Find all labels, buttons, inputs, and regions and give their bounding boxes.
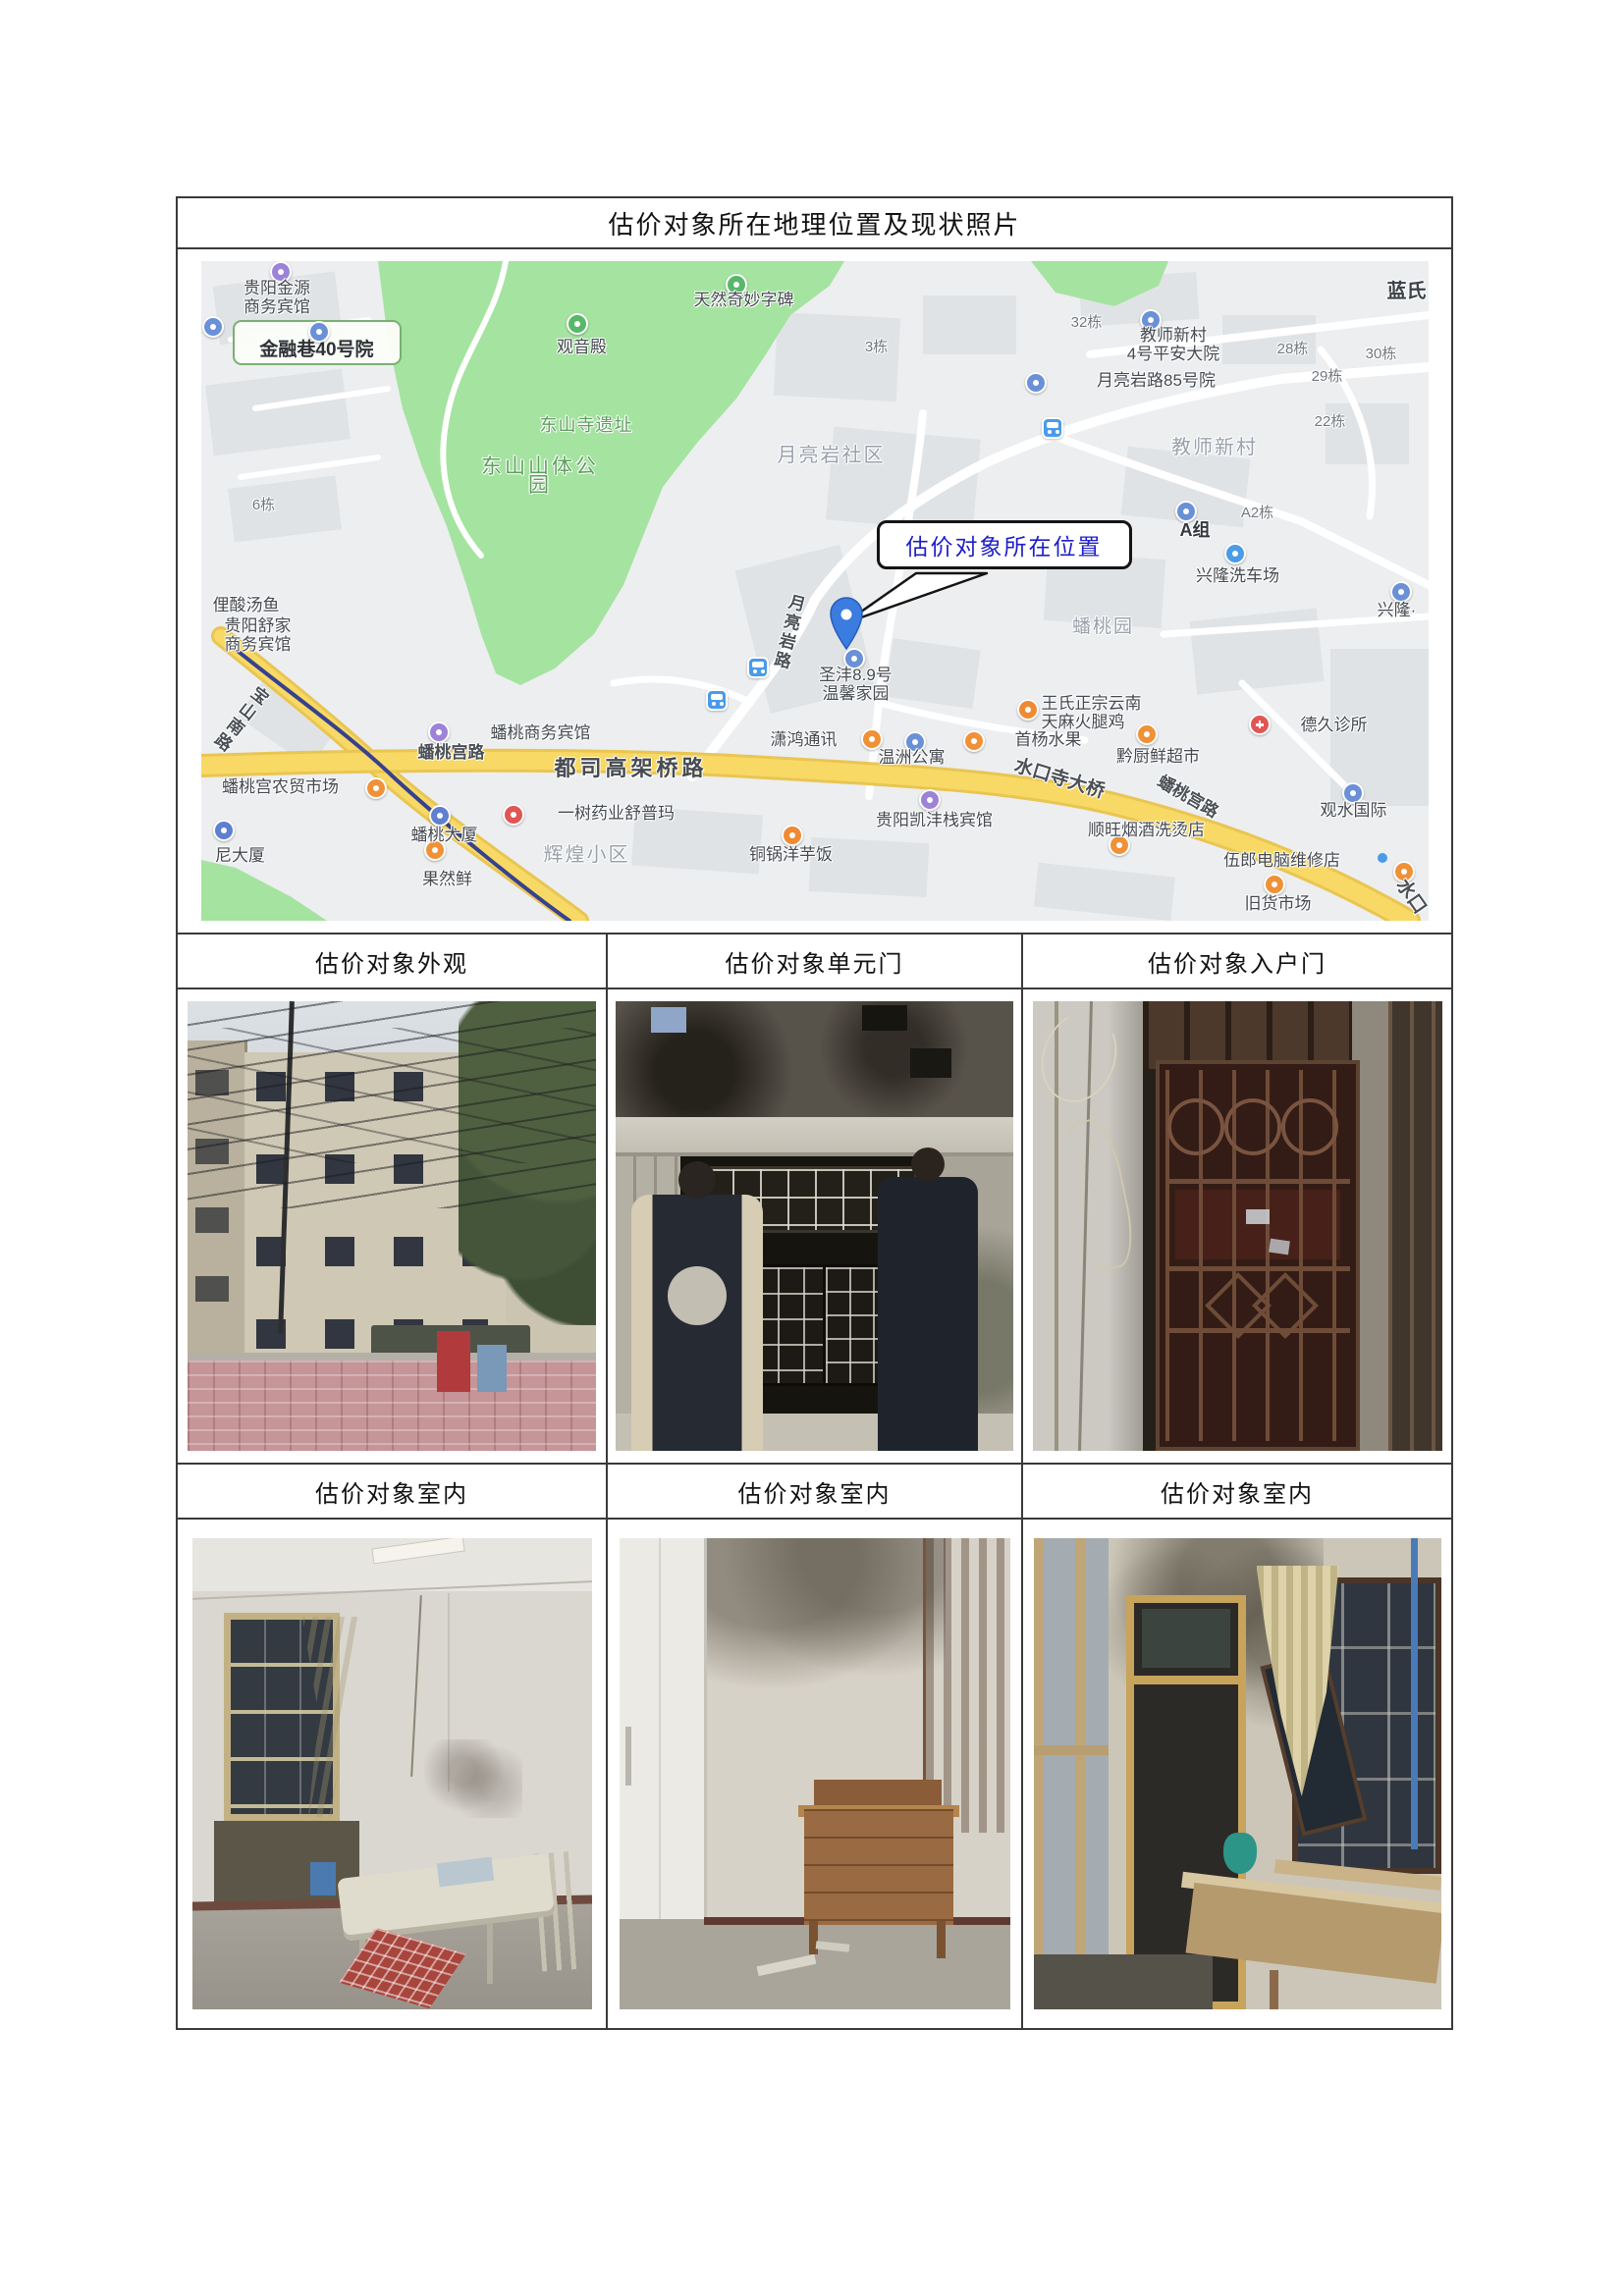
wall-stain <box>424 1739 522 1818</box>
map-label: 观水国际 <box>1313 801 1395 820</box>
residence-icon <box>1390 581 1412 603</box>
building-icon <box>213 820 235 841</box>
brick-wall <box>188 1353 596 1451</box>
bus-stop-icon <box>1042 417 1063 439</box>
caption-entry-door: 估价对象入户门 <box>1023 934 1451 988</box>
map-label: 贵阳金源 商务宾馆 <box>221 279 334 316</box>
ceiling-line <box>192 1580 592 1600</box>
map-label: 圣沣8.9号 温馨家园 <box>797 666 915 703</box>
pharmacy-icon <box>503 804 524 826</box>
left-window-frame <box>1034 1538 1109 2009</box>
sticker <box>1269 1239 1290 1255</box>
cabinet-seam <box>659 1538 661 1921</box>
gate-rail <box>1165 1266 1351 1271</box>
hotel-icon <box>919 789 941 811</box>
residence-icon <box>1175 501 1197 522</box>
gate-circle-motif <box>1281 1098 1338 1155</box>
photo-cell <box>1023 1520 1451 2028</box>
gate-circle-motif <box>1167 1098 1224 1155</box>
desk-leg <box>937 1921 946 1958</box>
wall-opening <box>862 1005 907 1031</box>
bench-leg <box>1270 1970 1278 2009</box>
red-poster <box>437 1331 470 1392</box>
lintel <box>616 1117 1013 1156</box>
map-label: 蟠桃园 <box>1069 616 1138 638</box>
map-label: 蟠桃宫农贸市场 <box>209 777 352 796</box>
map-label: 32栋 <box>1065 313 1109 332</box>
photo-cell <box>178 989 608 1463</box>
map-label: 月亮岩社区 <box>777 445 887 466</box>
map-row: 贵阳金源 商务宾馆 金融巷40号院 观音殿 天然奇妙字碑 东山寺遗址 东山山体公… <box>178 249 1451 934</box>
power-wires <box>188 1028 596 1162</box>
page-title: 估价对象所在地理位置及现状照片 <box>608 205 1020 241</box>
caption-text: 估价对象室内 <box>738 1474 892 1509</box>
map-label: 果然鲜 <box>415 870 480 888</box>
market-icon <box>365 777 387 799</box>
map-label: 尼大厦 <box>203 846 278 865</box>
side-grille <box>1388 1001 1441 1451</box>
clinic-icon <box>1249 714 1271 735</box>
photo-cell <box>1023 989 1451 1463</box>
shop-icon <box>963 730 985 752</box>
security-gate <box>1156 1060 1361 1451</box>
photo-cell <box>178 1520 608 2028</box>
photo-interior-deskroom <box>620 1538 1010 2009</box>
map-label: 黔厨鲜超市 <box>1110 747 1208 766</box>
building-icon <box>429 805 451 827</box>
map-label: 3栋 <box>857 338 896 356</box>
map-label: 蟠桃大厦 <box>404 826 486 844</box>
map-label: 顺旺烟酒洗烫店 <box>1077 821 1217 839</box>
caption-text: 估价对象室内 <box>1161 1474 1314 1509</box>
photo-row-1 <box>178 989 1451 1465</box>
address-plate <box>651 1007 686 1033</box>
map-label: A组 <box>1173 521 1218 540</box>
caption-unit-door: 估价对象单元门 <box>608 934 1023 988</box>
blue-pipe <box>1411 1538 1418 1849</box>
map-label: 兴隆· <box>1368 601 1427 619</box>
map-label: 贵阳凯沣栈宾馆 <box>865 811 1004 829</box>
caption-interior-2: 估价对象室内 <box>608 1465 1023 1518</box>
residence-icon <box>308 321 330 343</box>
blue-poster <box>477 1345 507 1392</box>
map-label: 30栋 <box>1360 345 1403 363</box>
person <box>878 1177 977 1451</box>
map-road-label: 蟠桃宫路 <box>411 743 492 762</box>
map-label: 一树药业舒普玛 <box>547 804 686 823</box>
callout-text: 估价对象所在位置 <box>906 528 1103 561</box>
restaurant-icon <box>782 825 803 846</box>
map-label: 教师新村 4号平安大院 <box>1112 326 1235 363</box>
temple-icon <box>567 313 588 335</box>
map-label: 蟠桃商务宾馆 <box>481 723 601 742</box>
map-label: 29栋 <box>1306 367 1349 386</box>
location-callout: 估价对象所在位置 <box>877 520 1132 569</box>
caption-exterior: 估价对象外观 <box>178 934 608 988</box>
photo-cell <box>608 1520 1023 2028</box>
plastic-bag <box>1223 1833 1257 1874</box>
map-label: 天然奇妙字碑 <box>676 291 813 309</box>
caption-text: 估价对象单元门 <box>726 944 904 979</box>
map-label: 铜锅洋芋饭 <box>741 845 841 864</box>
map-label: 蓝氏 <box>1378 283 1429 301</box>
map-label: 旧货市场 <box>1238 894 1319 913</box>
title-row: 估价对象所在地理位置及现状照片 <box>178 198 1451 249</box>
map-label: 6栋 <box>244 496 284 514</box>
map-label: 德久诊所 <box>1293 716 1376 734</box>
photo-unit-door <box>616 1001 1013 1451</box>
person <box>631 1195 763 1451</box>
shop-icon <box>861 728 883 750</box>
transom-pane <box>1142 1609 1230 1668</box>
map-road-label: 都司高架桥路 <box>553 759 710 777</box>
caption-interior-1: 估价对象室内 <box>178 1465 608 1518</box>
cabinet-hinge <box>625 1727 631 1786</box>
map-label: 温洲公寓 <box>872 748 952 767</box>
bus-stop-icon <box>706 689 728 711</box>
desk-backboard <box>814 1780 942 1805</box>
location-map: 贵阳金源 商务宾馆 金融巷40号院 观音殿 天然奇妙字碑 东山寺遗址 东山山体公… <box>201 261 1429 921</box>
caption-text: 估价对象入户门 <box>1148 944 1326 979</box>
wall-opening <box>910 1048 951 1078</box>
car-wash-icon <box>1224 543 1246 564</box>
bus-stop-icon <box>747 657 769 678</box>
map-label: 月亮岩路85号院 <box>1080 371 1233 390</box>
door-frame-bar <box>1126 1676 1246 1684</box>
caption-interior-3: 估价对象室内 <box>1023 1465 1451 1518</box>
photo-interior-bedroom <box>192 1538 592 2009</box>
wall-stain <box>698 1538 946 1695</box>
map-label: 王氏正宗云南 天麻火腿鸡 <box>1042 694 1160 731</box>
photo-row-2 <box>178 1520 1451 2028</box>
gate-circle-motif <box>1224 1098 1281 1155</box>
photo-interior-balcony <box>1034 1538 1441 2009</box>
sticker <box>1246 1209 1270 1224</box>
ceiling-light <box>371 1538 464 1564</box>
map-label: 首杨水果 <box>1008 730 1089 749</box>
photo-cell <box>608 989 1023 1463</box>
caption-row-1: 估价对象外观 估价对象单元门 估价对象入户门 <box>178 934 1451 989</box>
map-label: 贵阳舒家 商务宾馆 <box>206 616 310 654</box>
caption-text: 估价对象外观 <box>315 944 468 979</box>
desk-leg <box>809 1921 818 1954</box>
bed-leg <box>487 1915 493 1984</box>
map-label: 潇鸿通讯 <box>764 730 844 749</box>
caption-row-2: 估价对象室内 估价对象室内 估价对象室内 <box>178 1465 1451 1520</box>
map-label: 伍郎电脑维修店 <box>1211 851 1354 870</box>
floor <box>1034 1954 1214 2009</box>
bucket <box>310 1862 336 1896</box>
poi-dot-icon <box>1378 853 1387 863</box>
appraisal-photo-table: 估价对象所在地理位置及现状照片 <box>176 196 1453 2030</box>
wooden-desk <box>804 1809 953 1925</box>
gate-rail <box>1165 1179 1351 1184</box>
caption-text: 估价对象室内 <box>315 1474 468 1509</box>
photo-exterior <box>188 1001 596 1451</box>
hotel-icon <box>428 721 450 743</box>
map-label: 28栋 <box>1272 340 1315 358</box>
map-label: 东山山体公园 <box>474 457 607 495</box>
window-bar <box>1034 1745 1109 1755</box>
gate-rail <box>1165 1328 1351 1333</box>
shop-icon <box>1264 874 1285 895</box>
map-label: 兴隆洗车场 <box>1189 566 1287 585</box>
residence-icon <box>202 316 224 338</box>
map-label: 俚酸汤鱼 <box>201 596 292 614</box>
restaurant-icon <box>1017 699 1039 721</box>
photo-entry-door <box>1033 1001 1442 1451</box>
map-label: 22栋 <box>1309 412 1352 431</box>
map-label: 东山寺遗址 <box>540 416 633 435</box>
map-label-highlight-box: 金融巷40号院 <box>233 320 402 365</box>
map-label: 辉煌小区 <box>543 844 631 866</box>
map-label: A2栋 <box>1234 504 1281 522</box>
map-label: 教师新村 <box>1168 437 1262 458</box>
map-label: 观音殿 <box>543 338 622 356</box>
hanging-wire <box>411 1595 423 1777</box>
white-cabinet <box>620 1538 707 1923</box>
residence-icon <box>1025 372 1047 394</box>
